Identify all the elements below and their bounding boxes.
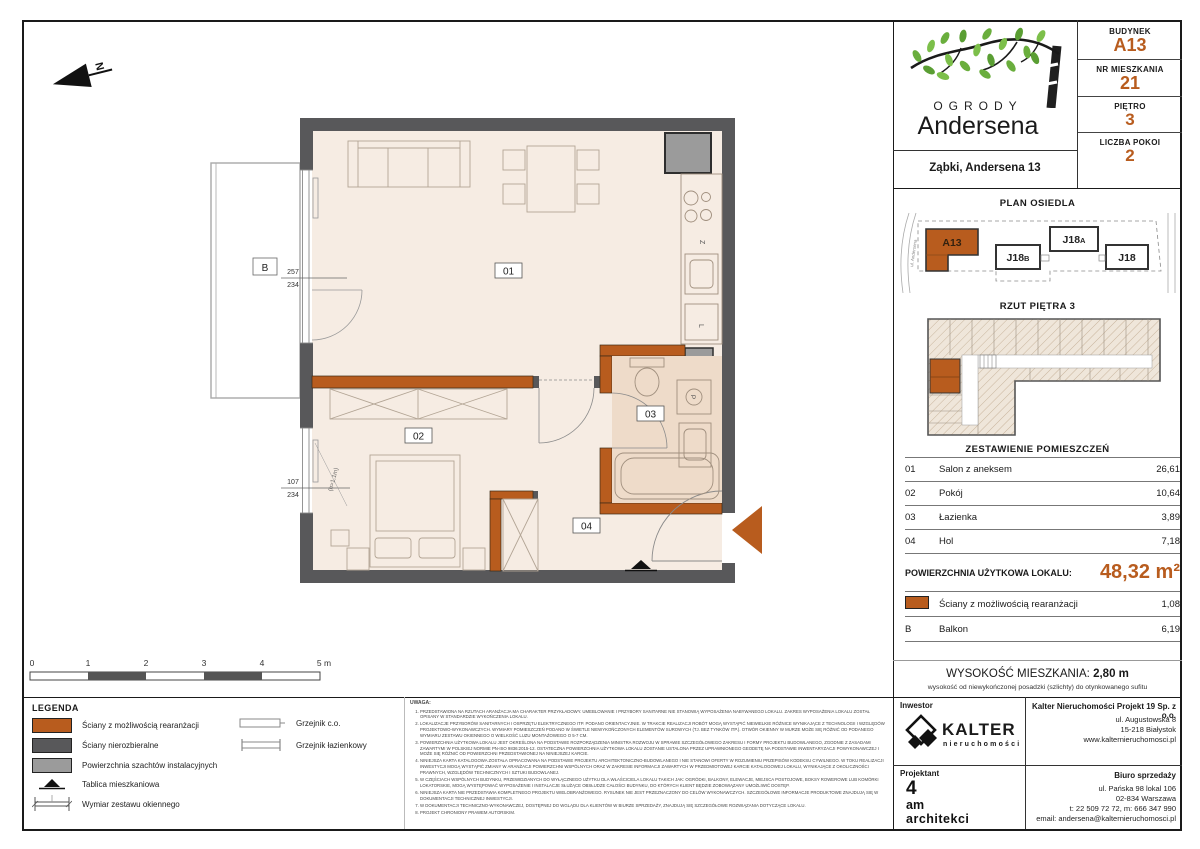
wall-swatch — [905, 596, 929, 609]
legend-notes-divider — [404, 697, 405, 829]
tablica-icon — [32, 777, 72, 791]
total-area-row: POWIERZCHNIA UŻYTKOWA LOKALU: 48,32 m² — [905, 553, 1180, 592]
floor-overview-map — [920, 313, 1168, 439]
legend-item-radiator-co: Grzejnik c.o. — [238, 716, 340, 730]
unit-info-value: 2 — [1078, 147, 1182, 165]
investor-address: ul. Augustowska 8 15-218 Białystok www.k… — [1030, 715, 1176, 745]
highlighted-unit — [930, 359, 960, 393]
address-bar-divider — [893, 150, 1077, 151]
window-dim-icon — [32, 794, 72, 814]
room-label-04: 04 — [581, 522, 593, 533]
kalter-brand-sub: nieruchomości — [943, 741, 1021, 748]
room-label-03: 03 — [645, 410, 657, 421]
scale-tick-5: 5 m — [317, 658, 331, 668]
dim-bedroom-bottom: 234 — [287, 492, 299, 499]
legend-item-radiator-bath: Grzejnik łazienkowy — [238, 738, 367, 752]
apartment-height: WYSOKOŚĆ MIESZKANIA: 2,80 m — [893, 668, 1182, 680]
note-item: W CZĘŚCIACH WSPÓLNYCH BUDYNKU, PRZEWIDZI… — [420, 777, 888, 788]
dim-bedroom-top: 107 — [287, 479, 299, 486]
note-item: W DOKUMENTACJI TECHNICZNO-WYKONAWCZEJ, D… — [420, 803, 888, 809]
brand-word-1: OGRODY — [898, 99, 1058, 113]
washer-letter: P — [689, 395, 696, 399]
unit-info-value: 3 — [1078, 111, 1182, 129]
svg-text:J18B: J18B — [1007, 252, 1031, 264]
table-row: 02 Pokój 10,64 — [905, 481, 1180, 505]
site-plan-map: ul. Andersena A13 J18B J18A J18 — [900, 209, 1182, 297]
height-note: wysokość od niewykończonej posadzki (szl… — [893, 684, 1182, 691]
apartment-card-sheet: N B — [0, 0, 1200, 849]
scale-tick-1: 1 — [86, 658, 91, 668]
table-row: 04 Hol 7,18 — [905, 529, 1180, 553]
height-divider — [893, 660, 1182, 661]
unit-info-value: 21 — [1078, 74, 1182, 93]
balcony — [211, 163, 300, 398]
dim-balcony-top: 257 — [287, 269, 299, 276]
note-item: POWIERZCHNIA UŻYTKOWA LOKALU JEST OKREŚL… — [420, 740, 888, 757]
notes-title: UWAGA: — [410, 700, 888, 707]
brand-word-2: Andersena — [898, 112, 1058, 141]
extra-row-walls: Ściany z możliwością rearanżacji 1,08 — [905, 592, 1180, 617]
investor-designer-hdivider — [893, 765, 1182, 766]
note-item: LOKALIZACJE PRZYBORÓW SANITARNYCH I OSPR… — [420, 721, 888, 738]
table-row: 03 Łazienka 3,89 — [905, 505, 1180, 529]
designer-role-label: Projektant — [900, 769, 939, 778]
kalter-brand-name: KALTER — [942, 720, 1016, 740]
site-building-a13-label: A13 — [942, 237, 961, 249]
legend-item-shafts: Powierzchnia szachtów instalacyjnych — [32, 758, 217, 773]
project-address: Ząbki, Andersena 13 — [893, 162, 1077, 174]
note-item: PRZEDSTAWIONA NA RZUTACH ARANŻACJA MA CH… — [420, 709, 888, 720]
north-arrow-head — [50, 64, 92, 96]
rooms-table: 01 Salon z aneksem 26,61 02 Pokój 10,64 … — [905, 457, 1180, 642]
radiator-bath-icon — [238, 738, 286, 752]
svg-text:J18: J18 — [1118, 252, 1136, 264]
room-label-01: 01 — [503, 267, 515, 278]
notes-list: PRZEDSTAWIONA NA RZUTACH ARANŻACJA MA CH… — [420, 709, 888, 816]
north-arrow: N — [45, 40, 119, 114]
scale-bar: 0 1 2 3 4 5 m — [28, 650, 358, 696]
legend-item-solid-walls: Ściany nierozbieralne — [32, 738, 159, 753]
fridge-letter: L — [697, 324, 704, 328]
note-item: NINIEJSZA KARTA KATALOGOWA ZOSTAŁA OPRAC… — [420, 758, 888, 775]
legend-swatch-lightgray — [32, 758, 72, 773]
bedroom-window — [300, 428, 313, 513]
scale-tick-4: 4 — [260, 658, 265, 668]
table-row: 01 Salon z aneksem 26,61 — [905, 457, 1180, 481]
unit-info-panel: BUDYNEK A13 NR MIESZKANIA 21 PIĘTRO 3 LI… — [1078, 20, 1182, 164]
scale-tick-3: 3 — [202, 658, 207, 668]
note-item: PROJEKT CHRONIONY PRAWEM AUTORSKIM. — [420, 810, 888, 816]
total-area-value: 48,32 m² — [1100, 561, 1180, 584]
room-label-02: 02 — [413, 432, 425, 443]
sales-office-title: Biuro sprzedaży — [1030, 771, 1176, 780]
investor-designer-divider — [1025, 697, 1026, 829]
note-item: NINIEJSZA KARTA NIE PRZEDSTAWIA KOMPLETN… — [420, 790, 888, 801]
brand-tree-illustration — [899, 24, 1071, 108]
sink-letter: Z — [698, 240, 705, 245]
leaves — [911, 27, 1048, 82]
radiator-co-icon — [238, 716, 286, 730]
scale-tick-2: 2 — [144, 658, 149, 668]
legend-swatch-orange — [32, 718, 72, 733]
sales-office-address: ul. Pańska 98 lokal 106 02-834 Warszawa … — [1030, 784, 1176, 825]
sidebar-top-divider — [893, 188, 1182, 189]
notes-block: UWAGA: PRZEDSTAWIONA NA RZUTACH ARANŻACJ… — [410, 700, 888, 817]
legend-title: LEGENDA — [32, 703, 79, 713]
unit-info-value: A13 — [1078, 36, 1182, 55]
bathroom-floor — [612, 356, 722, 503]
north-label: N — [92, 61, 106, 72]
installation-shaft-kitchen — [665, 133, 711, 173]
street-label-left: ul. Andersena — [909, 239, 918, 267]
total-area-label: POWIERZCHNIA UŻYTKOWA LOKALU: — [905, 568, 1100, 578]
rooms-table-title: ZESTAWIENIE POMIESZCZEŃ — [893, 444, 1182, 455]
sidebar-divider — [893, 20, 894, 829]
legend-item-tablica: Tablica mieszkaniowa — [32, 777, 159, 791]
floor-plan-drawing: B — [205, 108, 765, 598]
legend-swatch-darkgray — [32, 738, 72, 753]
investor-box-top — [893, 697, 1182, 698]
scale-tick-0: 0 — [30, 658, 35, 668]
balcony-label: B — [262, 263, 269, 274]
extra-row-balcony: B Balkon 6,19 — [905, 617, 1180, 642]
height-value: 2,80 m — [1093, 668, 1129, 680]
investor-role-label: Inwestor — [900, 701, 933, 710]
dim-balcony-bottom: 234 — [287, 282, 299, 289]
height-label: WYSOKOŚĆ MIESZKANIA: — [946, 668, 1090, 680]
floor-overview-title: RZUT PIĘTRA 3 — [893, 301, 1182, 312]
designer-studio-logo: 4 am architekci — [906, 779, 969, 825]
bottom-strip-divider — [22, 697, 893, 698]
kalter-logo-icon — [903, 714, 939, 756]
site-building-a13 — [926, 229, 978, 271]
legend-item-rearrangeable: Ściany z możliwością rearanżacji — [32, 718, 199, 733]
legend-item-window-dim: Wymiar zestawu okiennego — [32, 794, 180, 814]
site-plan-title: PLAN OSIEDLA — [893, 198, 1182, 209]
svg-text:J18A: J18A — [1063, 234, 1087, 246]
balcony-window — [300, 170, 313, 343]
entrance-arrow — [732, 506, 762, 554]
